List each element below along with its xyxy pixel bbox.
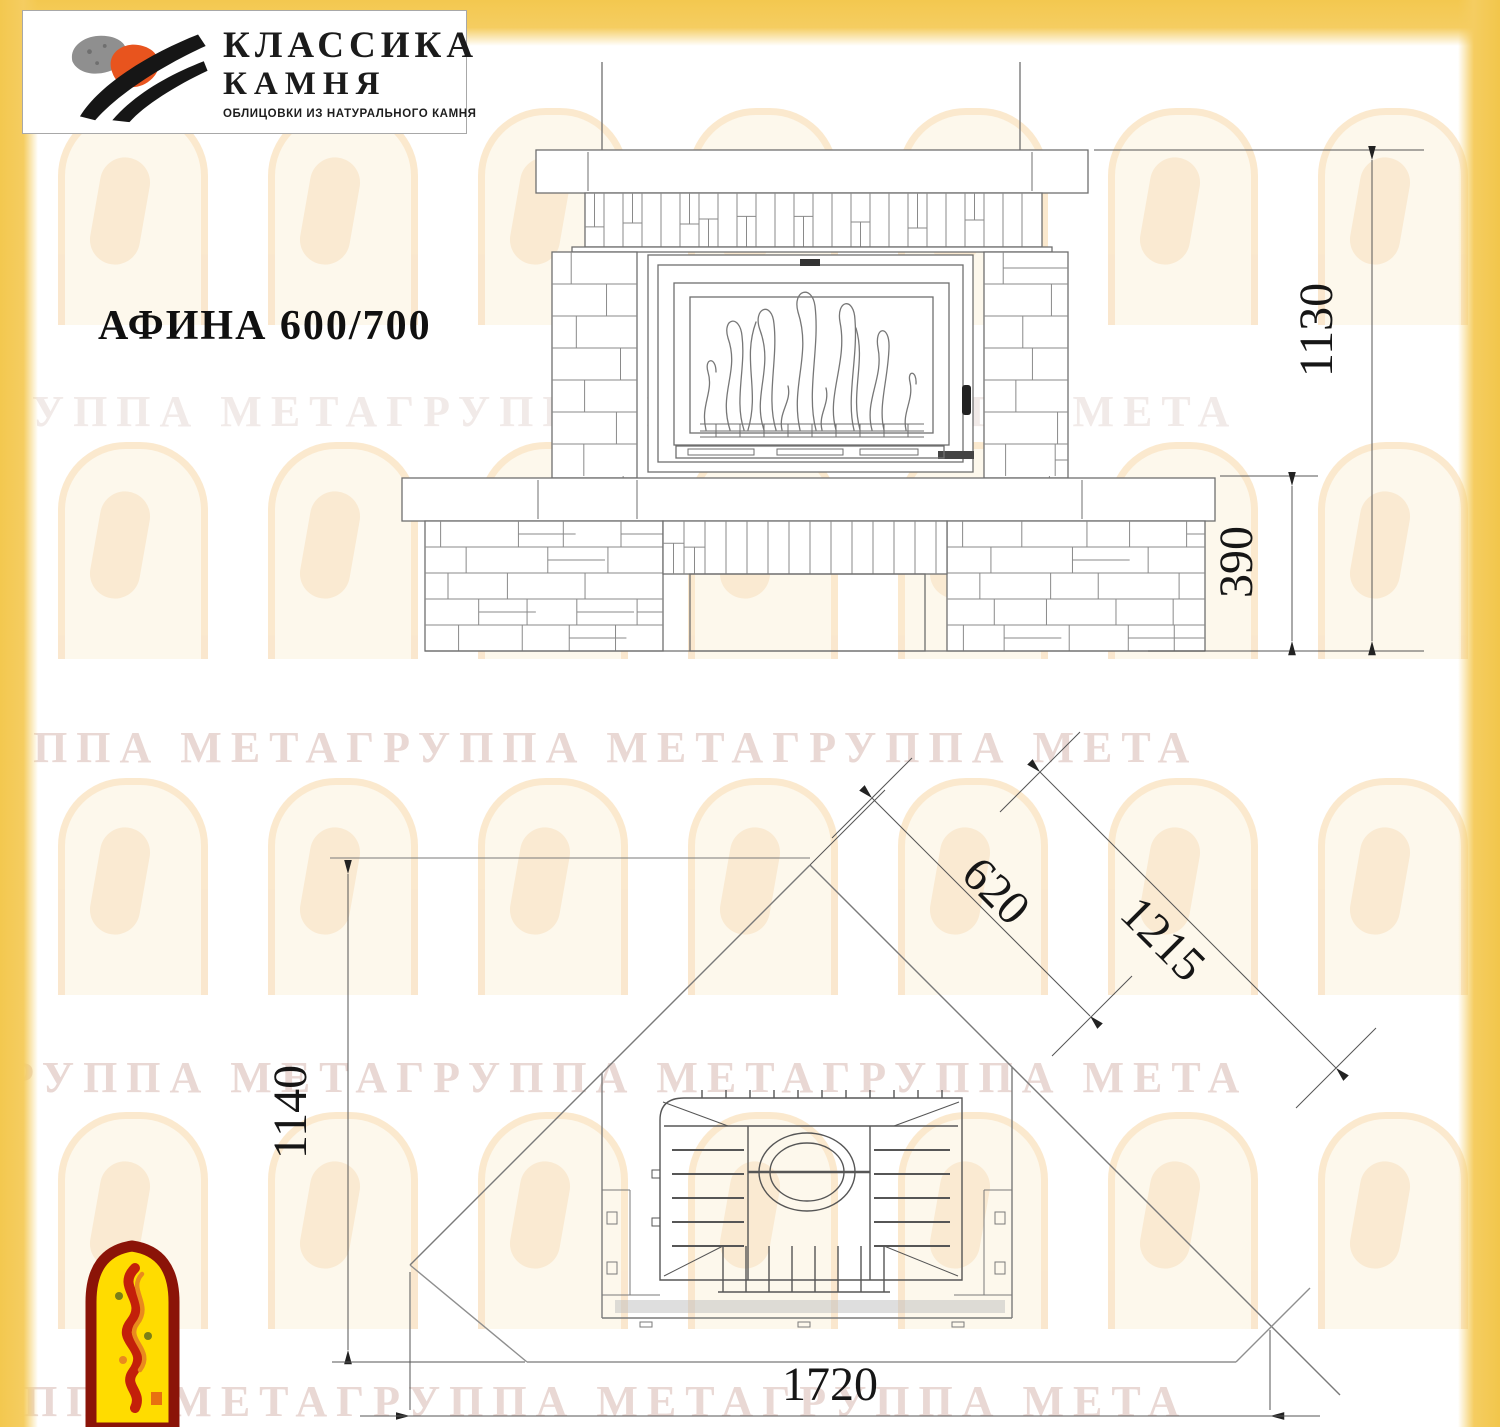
meta-arch-logo-icon: [85, 1238, 180, 1427]
front-base-height-dim: 390: [1210, 526, 1263, 598]
brand-name-line1: КЛАССИКА: [223, 27, 463, 66]
border-band-left: [0, 0, 38, 1427]
plan-front-width-dim: 1720: [782, 1358, 878, 1411]
front-total-height-dim: 1130: [1290, 283, 1343, 377]
plan-firebox-diagonal-dim: 620: [952, 847, 1040, 935]
model-title: АФИНА 600/700: [98, 302, 432, 350]
door-vent: [800, 259, 820, 266]
door-handle: [962, 385, 971, 415]
plan-view-dimensions: 1140 620 1215 1720: [264, 732, 1376, 1416]
front-elevation-view: [402, 62, 1215, 651]
fireplace-spec-sheet: ГРУППА МЕТАГРУППА МЕТАГРУППА МЕТА ГРУППА…: [0, 0, 1500, 1427]
brand-logo: КЛАССИКА КАМНЯ ОБЛИЦОВКИ ИЗ НАТУРАЛЬНОГО…: [22, 10, 467, 134]
firebox-insert: [648, 255, 974, 472]
border-band-right: [1458, 0, 1500, 1427]
plan-depth-dim: 1140: [264, 1065, 317, 1159]
brand-tagline: ОБЛИЦОВКИ ИЗ НАТУРАЛЬНОГО КАМНЯ: [223, 108, 463, 120]
brand-name-line2: КАМНЯ: [223, 66, 463, 102]
stone-logo-icon: [59, 25, 219, 125]
technical-drawing: 1130 390: [0, 0, 1500, 1427]
plan-back-diagonal-dim: 1215: [1110, 886, 1215, 991]
insert-plan-view: [652, 1090, 962, 1292]
